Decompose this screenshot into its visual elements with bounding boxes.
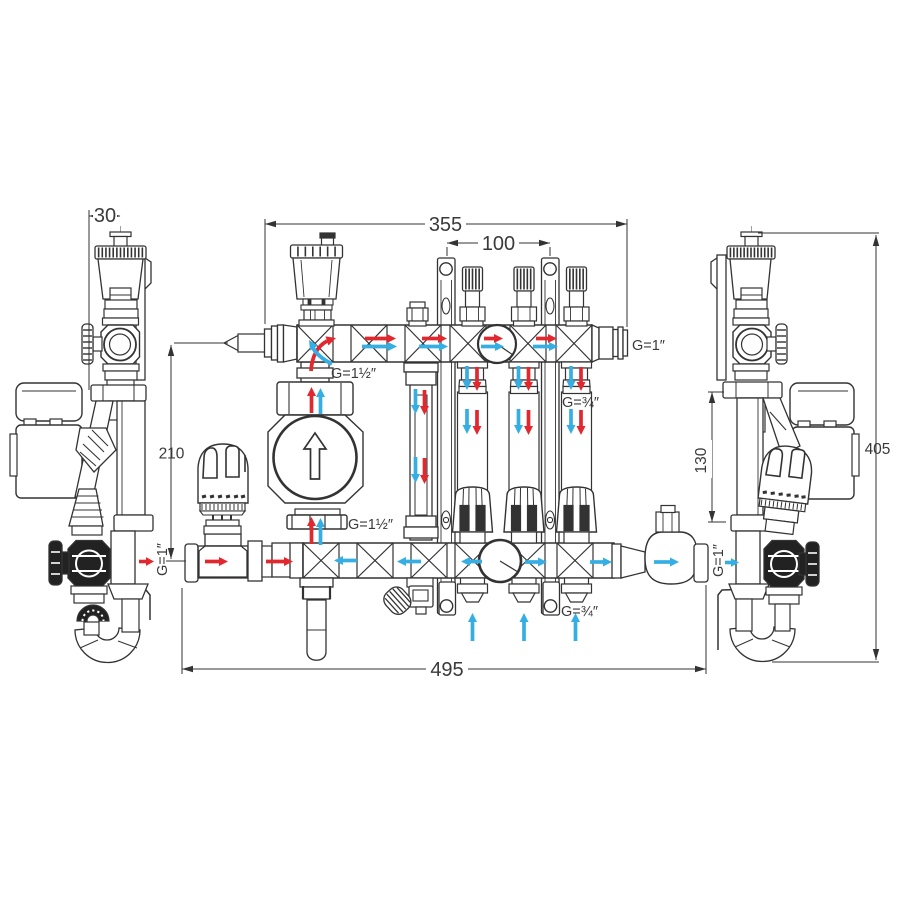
svg-text:G=1½″: G=1½″ [348,517,393,533]
svg-text:130: 130 [693,447,710,473]
svg-text:G=¾″: G=¾″ [562,395,599,411]
svg-text:495: 495 [430,659,463,681]
svg-text:100: 100 [482,233,515,255]
svg-text:G=¾″: G=¾″ [561,604,598,620]
svg-text:405: 405 [865,441,891,458]
svg-text:G=1″: G=1″ [711,544,727,577]
svg-text:G=1″: G=1″ [155,543,171,576]
svg-text:355: 355 [429,214,462,236]
svg-text:30: 30 [94,205,116,227]
svg-text:210: 210 [159,446,185,463]
svg-text:G=1½″: G=1½″ [331,366,376,382]
svg-text:G=1″: G=1″ [632,338,665,354]
